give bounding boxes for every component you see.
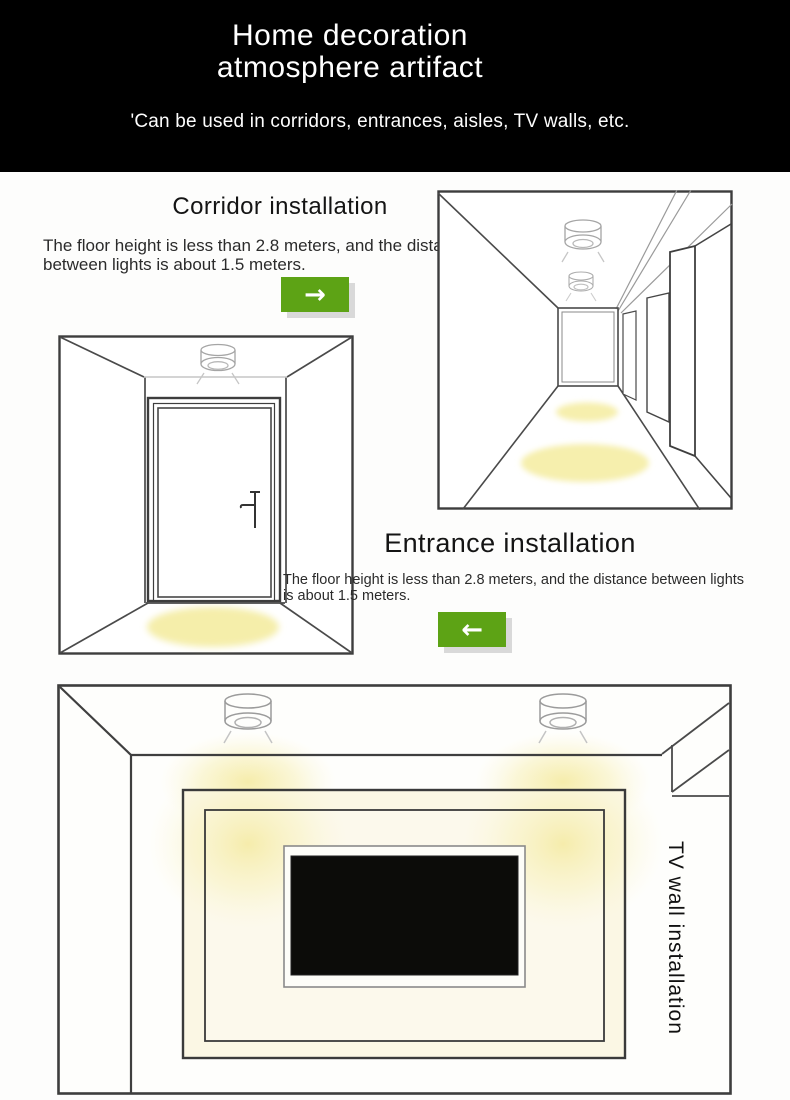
corridor-illustration [437,190,733,510]
tv-wall-section-label: TV wall installation [663,841,687,1041]
entrance-illustration [58,335,354,655]
page: Home decoration atmosphere artifact 'Can… [0,0,790,1100]
tv-wall-illustration [57,684,732,1096]
page-title-line1: Home decoration [130,20,570,52]
television [284,846,525,987]
entrance-section-body: The floor height is less than 2.8 meters… [283,572,751,604]
page-title: Home decoration atmosphere artifact [130,20,570,84]
arrow-left-button[interactable]: ← [438,612,506,647]
entrance-door [148,398,280,601]
arrow-right-icon: → [304,280,326,310]
tv-screen [291,856,518,975]
arrow-left-icon: ← [461,615,483,645]
header-banner: Home decoration atmosphere artifact 'Can… [0,0,790,172]
entrance-floor-light-pool [147,607,279,647]
entrance-section-heading: Entrance installation [290,528,730,559]
page-title-line2: atmosphere artifact [130,52,570,84]
arrow-right-button[interactable]: → [281,277,349,312]
page-subtitle: 'Can be used in corridors, entrances, ai… [80,111,680,133]
